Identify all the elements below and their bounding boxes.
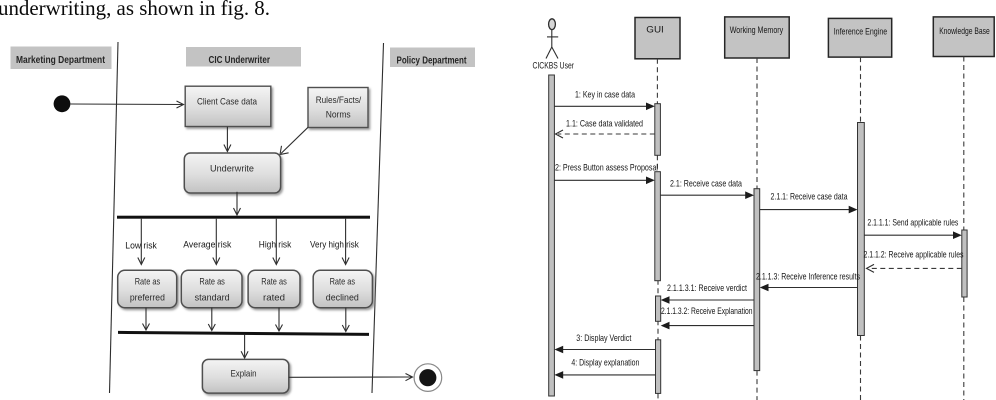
svg-text:4: Display explanation: 4: Display explanation	[571, 358, 639, 368]
svg-text:Rate as: Rate as	[330, 277, 356, 288]
svg-text:2: Press Button assess Proposa: 2: Press Button assess Proposal	[555, 163, 658, 173]
svg-text:declined: declined	[326, 293, 359, 304]
svg-text:Rules/Facts/: Rules/Facts/	[316, 95, 362, 106]
svg-text:CICKBS User: CICKBS User	[533, 61, 575, 71]
svg-text:2.1: Receive case data: 2.1: Receive case data	[670, 178, 743, 188]
svg-text:standard: standard	[195, 293, 230, 304]
svg-text:High risk: High risk	[259, 240, 292, 250]
svg-text:1: Key in case data: 1: Key in case data	[575, 89, 636, 99]
svg-text:Rate as: Rate as	[135, 277, 161, 288]
svg-text:Policy Department: Policy Department	[397, 56, 468, 67]
svg-text:Very high risk: Very high risk	[310, 240, 359, 250]
svg-text:CIC Underwriter: CIC Underwriter	[209, 55, 271, 66]
svg-text:2.1.1.3: Receive Inference res: 2.1.1.3: Receive Inference results	[756, 272, 860, 282]
svg-text:2.1.1: Receive case data: 2.1.1: Receive case data	[771, 192, 849, 202]
svg-text:Explain: Explain	[231, 369, 257, 380]
svg-text:Client Case data: Client Case data	[197, 97, 258, 108]
svg-text:Underwrite: Underwrite	[210, 163, 254, 174]
svg-text:preferred: preferred	[130, 293, 165, 304]
svg-text:Norms: Norms	[326, 109, 351, 120]
svg-text:2.1.1.1: Send applicable rules: 2.1.1.1: Send applicable rules	[867, 218, 958, 228]
svg-text:underwriting, as shown in fig.: underwriting, as shown in fig. 8.	[0, 0, 270, 20]
svg-text:Rate as: Rate as	[199, 277, 225, 288]
svg-text:3: Display Verdict: 3: Display Verdict	[576, 333, 631, 343]
svg-text:rated: rated	[263, 293, 285, 304]
svg-text:Rate as: Rate as	[261, 277, 287, 288]
svg-text:Knowledge Base: Knowledge Base	[939, 26, 990, 36]
svg-text:1.1: Case data validated: 1.1: Case data validated	[566, 119, 643, 129]
svg-text:Working Memory: Working Memory	[730, 25, 784, 35]
svg-text:Inference Engine: Inference Engine	[834, 27, 888, 37]
svg-text:Low risk: Low risk	[125, 241, 157, 251]
svg-text:Average risk: Average risk	[183, 240, 231, 250]
svg-text:2.1.1.2: Receive applicable ru: 2.1.1.2: Receive applicable rules	[864, 250, 964, 260]
svg-text:Marketing Department: Marketing Department	[16, 55, 106, 66]
svg-text:GUI: GUI	[646, 25, 664, 35]
svg-text:2.1.1.3.2: Receive Explanation: 2.1.1.3.2: Receive Explanation	[661, 306, 753, 316]
svg-text:2.1.1.3.1: Receive verdict: 2.1.1.3.1: Receive verdict	[667, 283, 747, 293]
